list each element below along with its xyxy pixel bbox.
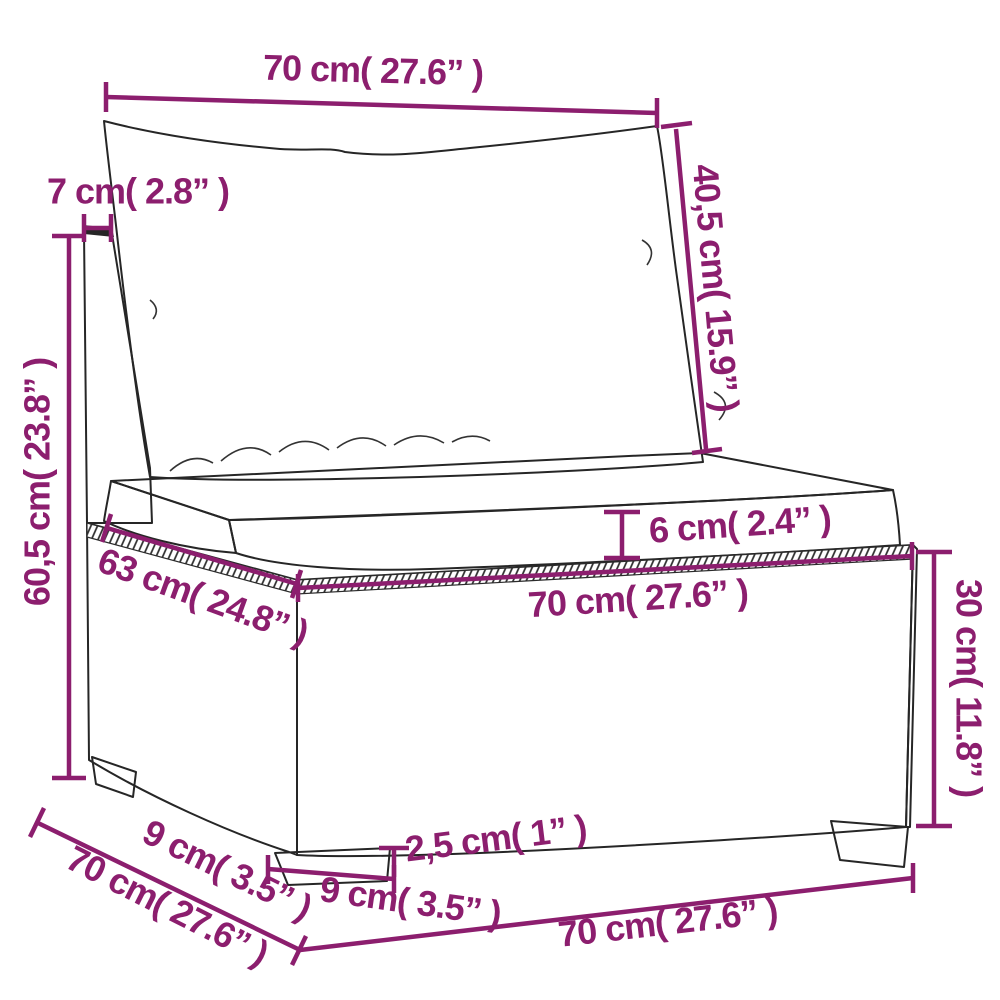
cushion-wrinkle xyxy=(150,300,156,319)
dim-label-base-height: 30 cm( 11.8” ) xyxy=(948,579,989,797)
dim-label-top-width: 70 cm( 27.6” ) xyxy=(263,47,484,94)
dim-label-leg-height: 2,5 cm( 1” ) xyxy=(403,807,589,870)
dim-label-cushion-thickness: 6 cm( 2.4” ) xyxy=(648,497,833,551)
sofa-dimension-drawing: 70 cm( 27.6” ) 7 cm( 2.8” ) 40,5 cm( 15.… xyxy=(0,0,1000,1000)
cushion-fold-lines xyxy=(170,392,725,471)
dim-line-base-height xyxy=(916,552,952,826)
dim-label-back-cushion-height: 40,5 cm( 15.9” ) xyxy=(685,162,747,413)
cushion-wrinkle xyxy=(642,240,651,265)
dim-label-frame-thickness: 7 cm( 2.8” ) xyxy=(47,171,229,212)
dim-label-leg-width: 9 cm( 3.5” ) xyxy=(317,868,503,934)
dim-label-overall-width: 70 cm( 27.6” ) xyxy=(556,889,779,955)
dimension-diagram: 70 cm( 27.6” ) 7 cm( 2.8” ) 40,5 cm( 15.… xyxy=(0,0,1000,1000)
dim-line-frame-thickness xyxy=(84,214,111,242)
dim-line-leg-height xyxy=(379,848,409,877)
base-right-edge xyxy=(906,545,917,827)
dim-line-cushion-thickness xyxy=(604,512,640,558)
dim-label-total-height: 60,5 cm( 23.8” ) xyxy=(17,358,58,606)
leg-back-left xyxy=(92,757,136,797)
